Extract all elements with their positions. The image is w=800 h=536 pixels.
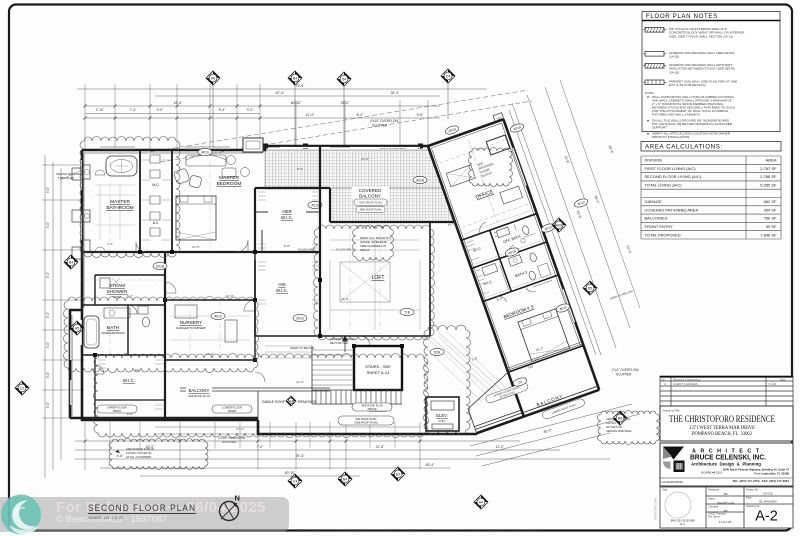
svg-text:N: N — [235, 494, 240, 503]
svg-text:SCALE: 1/4" = 1'-0": SCALE: 1/4" = 1'-0" — [88, 515, 123, 520]
svg-text:SECOND FLOOR PLAN: SECOND FLOOR PLAN — [88, 503, 196, 513]
